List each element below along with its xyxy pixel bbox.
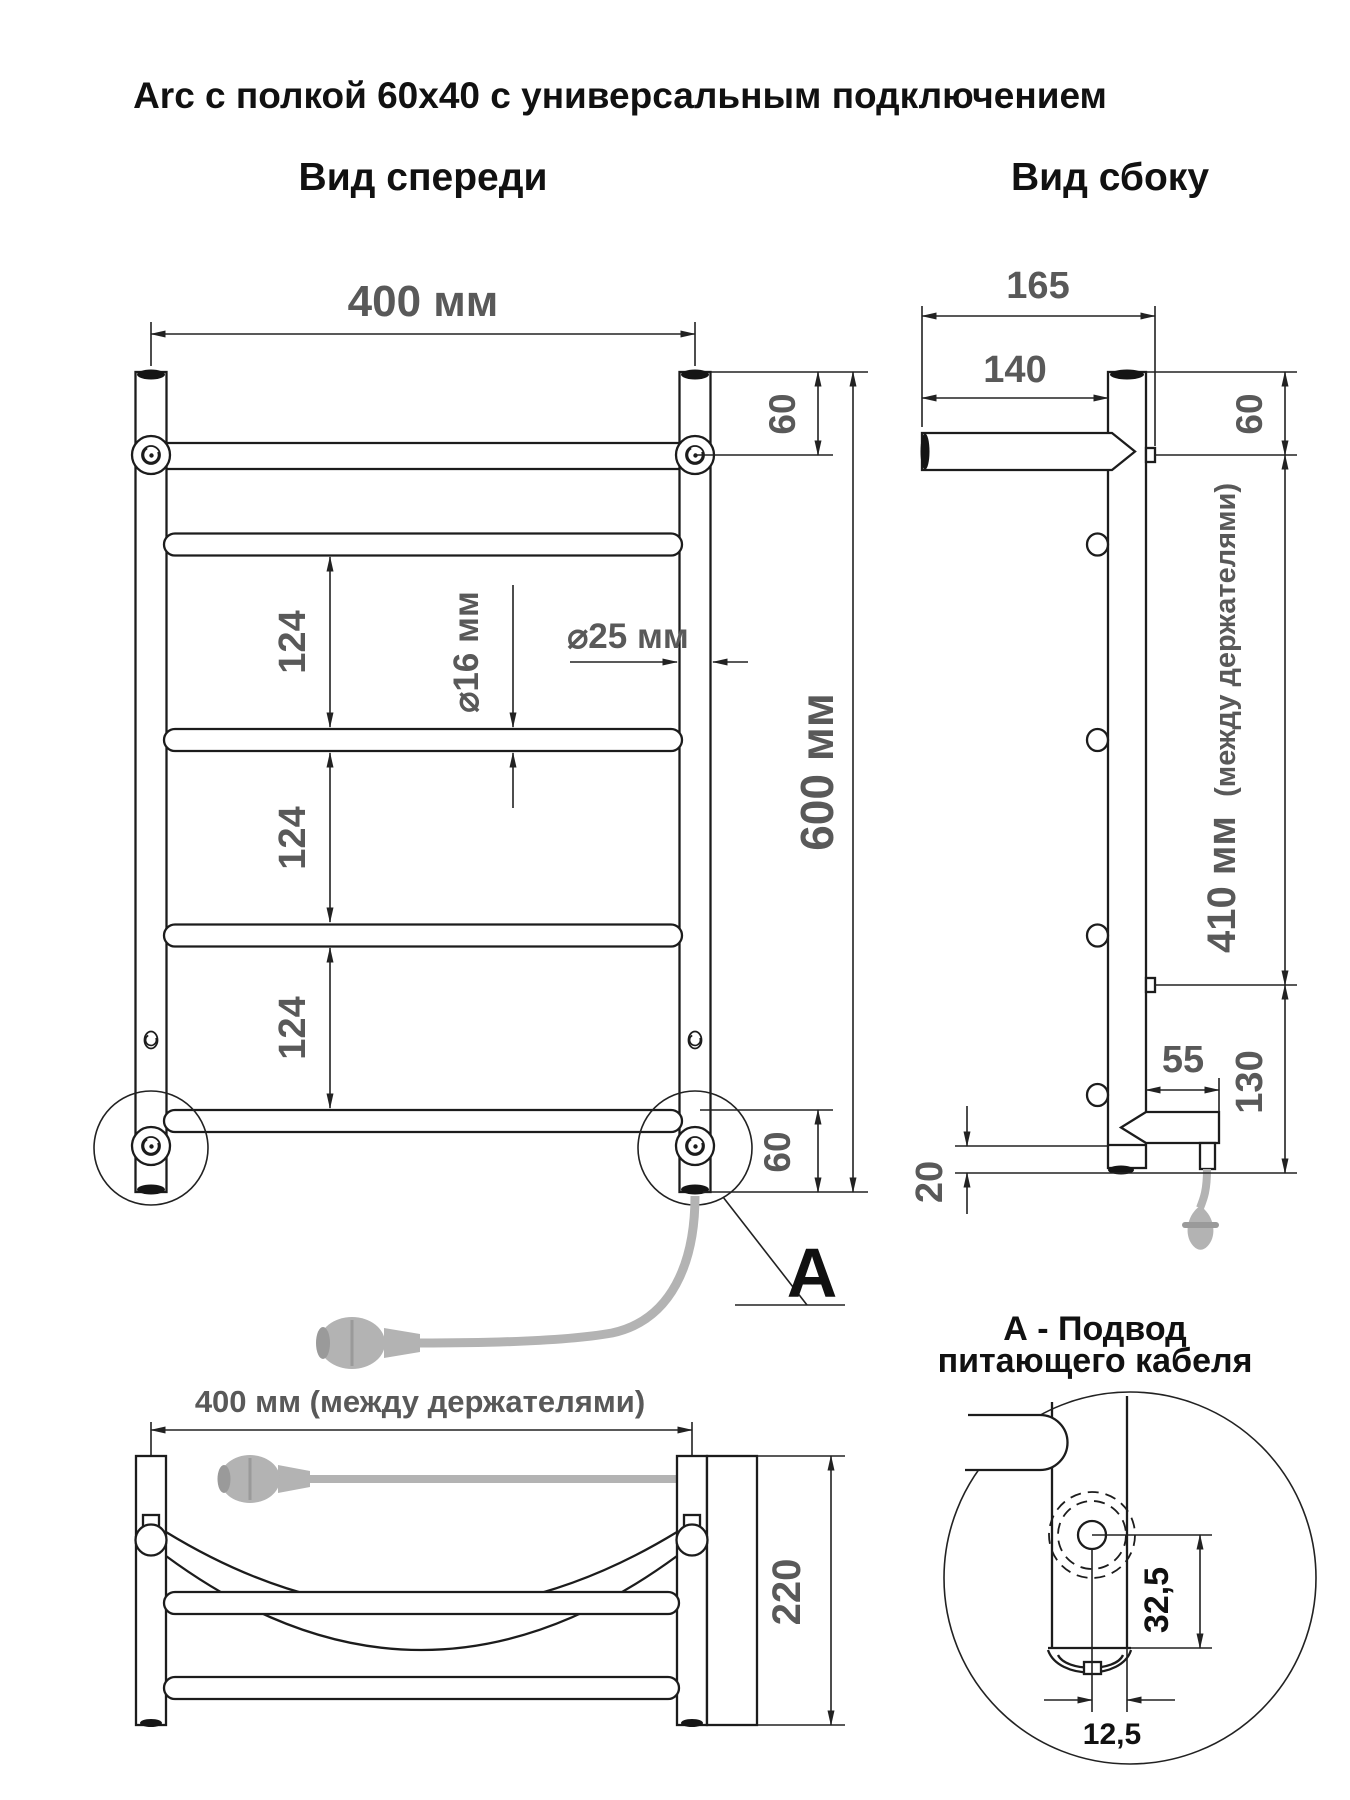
svg-text:400 мм (между держателями): 400 мм (между держателями) xyxy=(195,1384,645,1419)
post-cap xyxy=(137,1185,165,1195)
top-rail xyxy=(164,1677,679,1699)
dim-detail-hole-height: 32,5 xyxy=(1092,1535,1212,1648)
dim-front-width: 400 мм xyxy=(151,277,695,366)
dim-front-height: 600 мм xyxy=(703,372,868,1192)
svg-text:55: 55 xyxy=(1162,1039,1204,1081)
rail-3 xyxy=(164,925,682,947)
dim-front-bottom-offset: 60 xyxy=(700,1110,833,1192)
power-cable-side xyxy=(1182,1169,1219,1250)
post-cap xyxy=(140,1719,162,1727)
top-left-post xyxy=(136,1456,166,1725)
wall-stub xyxy=(1146,448,1155,462)
dim-post-diameter: ⌀25 мм xyxy=(567,617,748,662)
svg-text:124: 124 xyxy=(272,806,314,869)
wall-stub xyxy=(1146,978,1155,992)
svg-text:A: A xyxy=(787,1234,838,1312)
post-cap xyxy=(681,1719,703,1727)
detail-a-title-2: питающего кабеля xyxy=(938,1342,1253,1380)
side-post xyxy=(1108,372,1146,1168)
svg-text:⌀25 мм: ⌀25 мм xyxy=(567,617,689,656)
svg-text:410 мм (между держател: 410 мм (между держателями) xyxy=(1200,483,1244,953)
dim-rail-spacing: 124 124 124 xyxy=(272,557,330,1108)
svg-text:400 мм: 400 мм xyxy=(348,277,499,326)
top-view: 400 мм (между держателями) xyxy=(136,1384,846,1727)
dim-side-floor-clearance: 20 xyxy=(909,1106,1108,1214)
wall-screw xyxy=(145,1032,158,1049)
post-cap xyxy=(1110,370,1144,380)
power-cable-top xyxy=(218,1455,677,1503)
svg-text:124: 124 xyxy=(272,610,314,673)
svg-text:20: 20 xyxy=(909,1161,951,1203)
side-view: 165 140 60 410 мм (между держателями) 13… xyxy=(909,265,1297,1250)
svg-text:124: 124 xyxy=(272,996,314,1059)
power-cable-front xyxy=(316,1196,695,1369)
bracket-span-note: (между держателями) xyxy=(1210,483,1242,797)
drawing-page: Arc с полкой 60x40 с универсальным подкл… xyxy=(0,0,1350,1800)
side-rail-stub xyxy=(1087,729,1108,751)
dim-front-top-offset: 60 xyxy=(695,372,868,455)
front-view: 400 мм 60 600 мм 60 124 124 12 xyxy=(94,277,868,1369)
detail-a-callout: A xyxy=(723,1197,845,1312)
bracket-span-value: 410 мм xyxy=(1200,816,1244,953)
side-shelf-arm xyxy=(921,433,1136,470)
svg-text:32,5: 32,5 xyxy=(1138,1567,1176,1633)
rail-2 xyxy=(164,729,682,751)
pivot-ball xyxy=(677,1525,708,1556)
svg-text:60: 60 xyxy=(757,1131,798,1172)
technical-drawing: Arc с полкой 60x40 с универсальным подкл… xyxy=(0,0,1350,1800)
svg-text:600 мм: 600 мм xyxy=(791,693,843,851)
dim-rail-diameter: ⌀16 мм xyxy=(447,585,513,808)
page-title: Arc с полкой 60x40 с универсальным подкл… xyxy=(133,75,1107,116)
dim-side-connector-length: 55 xyxy=(1146,1039,1219,1112)
svg-text:60: 60 xyxy=(1229,393,1270,434)
dim-top-depth: 220 xyxy=(757,1456,845,1725)
pivot-ball xyxy=(136,1525,167,1556)
svg-text:140: 140 xyxy=(983,349,1046,391)
rail-1 xyxy=(164,534,682,556)
front-left-post xyxy=(136,372,167,1192)
side-rail-stub xyxy=(1087,1084,1108,1106)
top-rail xyxy=(164,1592,679,1614)
svg-text:⌀16 мм: ⌀16 мм xyxy=(447,591,486,713)
top-right-post xyxy=(677,1456,707,1725)
side-view-title: Вид сбоку xyxy=(1011,156,1209,199)
post-cap xyxy=(681,370,709,380)
front-view-title: Вид спереди xyxy=(299,156,548,199)
post-cap xyxy=(681,1185,709,1195)
svg-text:60: 60 xyxy=(762,393,803,434)
svg-text:130: 130 xyxy=(1229,1050,1271,1113)
detail-rail-stub xyxy=(965,1415,1068,1470)
wall-screw xyxy=(689,1032,702,1049)
svg-text:220: 220 xyxy=(765,1559,809,1626)
post-cap xyxy=(137,370,165,380)
front-right-post xyxy=(680,372,711,1192)
side-rail-stub xyxy=(1087,534,1108,556)
svg-text:165: 165 xyxy=(1006,265,1069,307)
top-right-plate xyxy=(707,1456,757,1725)
dim-side-shelf-depth: 140 xyxy=(922,349,1108,398)
detail-callout-circles xyxy=(94,1091,752,1205)
detail-a: А - Подвод питающего кабеля 32,5 xyxy=(938,1310,1316,1764)
rail-4 xyxy=(164,1110,682,1132)
side-rail-stub xyxy=(1087,925,1108,947)
svg-text:12,5: 12,5 xyxy=(1083,1718,1141,1751)
